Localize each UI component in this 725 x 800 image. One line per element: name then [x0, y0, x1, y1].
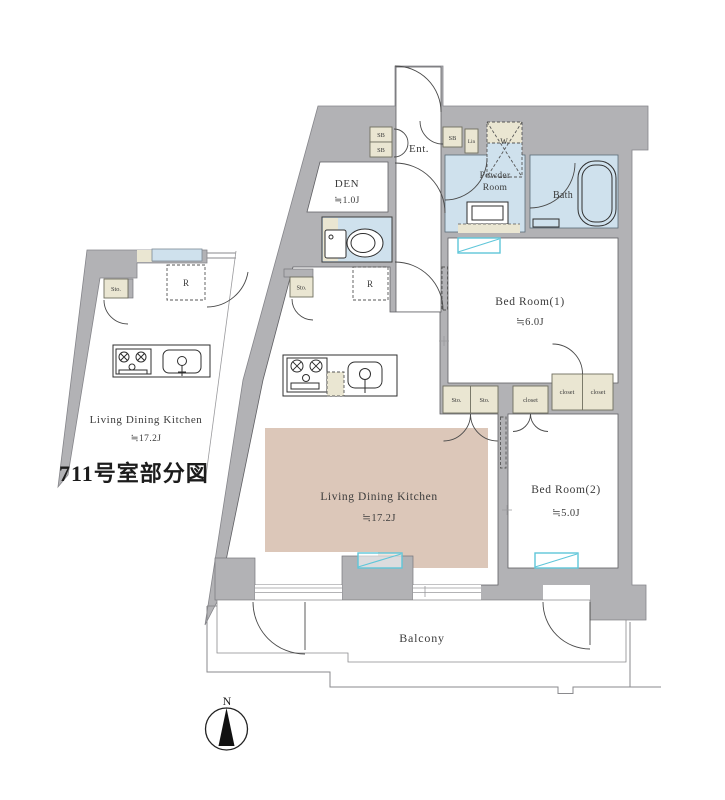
shoebox-right-label: SB: [449, 135, 457, 142]
inset-window: [152, 249, 202, 261]
balcony-opening-3: [543, 585, 590, 600]
inset-entry-door-arc: [207, 272, 248, 307]
bedroom1-label: Bed Room(1): [495, 296, 565, 308]
shoebox-left-1-label: SB: [377, 132, 385, 139]
den-label: DEN: [335, 178, 359, 190]
inset-fridge-label: R: [183, 278, 189, 288]
entrance-label: Ent.: [409, 143, 429, 155]
inset-kitchen-counter: [113, 345, 210, 377]
shoebox-left-2-label: SB: [377, 147, 385, 154]
inset-wall-extension-lines: [207, 253, 236, 258]
kitchen-sto-label: Sto.: [297, 285, 307, 292]
floorplan-svg: Sto. R Living Dining Kitchen ≒17.2J 711号…: [0, 0, 725, 800]
inset-sto-door-arc: [104, 300, 128, 324]
fridge-label: R: [367, 279, 373, 289]
sto-pair-label-2: Sto.: [480, 397, 490, 404]
closet-pair-label-2: closet: [591, 389, 606, 396]
balcony-label: Balcony: [399, 631, 445, 645]
compass-icon: N: [206, 694, 248, 750]
compass-needle: [219, 708, 235, 746]
bedroom1-window-icon: [458, 238, 500, 253]
ldk-area-label: ≒17.2J: [362, 513, 396, 524]
page-title: 711号室部分図: [59, 461, 209, 486]
compass-north-label: N: [223, 694, 232, 708]
ldk-label: Living Dining Kitchen: [320, 491, 437, 503]
kitchen-sto-top-wall: [284, 269, 313, 277]
inset-plan: Sto. R Living Dining Kitchen ≒17.2J 711号…: [58, 249, 248, 487]
bedroom1-area-label: ≒6.0J: [516, 317, 544, 328]
kitchen-counter: [283, 355, 397, 396]
bedroom2-area-label: ≒5.0J: [552, 508, 580, 519]
powder-room-label-1: Powder: [480, 171, 511, 181]
linen-label: Lin: [468, 139, 476, 145]
bedroom1-floor: [448, 238, 618, 383]
bedroom2-window-icon: [535, 553, 578, 568]
inset-top-cabinet: [137, 250, 152, 262]
den-area-label: ≒1.0J: [334, 196, 360, 206]
bedroom2-label: Bed Room(2): [531, 484, 601, 496]
toilet-room: [322, 217, 392, 262]
inset-ldk-label: Living Dining Kitchen: [90, 414, 203, 426]
inset-sto-side-wall: [128, 279, 133, 298]
bath-label: Bath: [553, 190, 573, 201]
washer-label: W: [500, 137, 508, 146]
inset-sto-label: Sto.: [111, 286, 121, 293]
closet-pair-label-1: closet: [560, 389, 575, 396]
entrance-hall-floor: [396, 67, 441, 312]
floorplan-page: Sto. R Living Dining Kitchen ≒17.2J 711号…: [0, 0, 725, 800]
main-plan: W SB SB SB Lin Sto. R: [205, 66, 661, 694]
counter-beige-box: [327, 372, 344, 396]
powder-room-label-2: Room: [483, 183, 508, 193]
toilet-icon: [325, 229, 383, 258]
inset-ldk-area: ≒17.2J: [131, 434, 162, 444]
bottom-wall-left-block: [215, 558, 255, 600]
closet-single-label: closet: [523, 397, 538, 404]
ldk-window-icon: [358, 553, 402, 568]
sto-pair-label-1: Sto.: [452, 397, 462, 404]
